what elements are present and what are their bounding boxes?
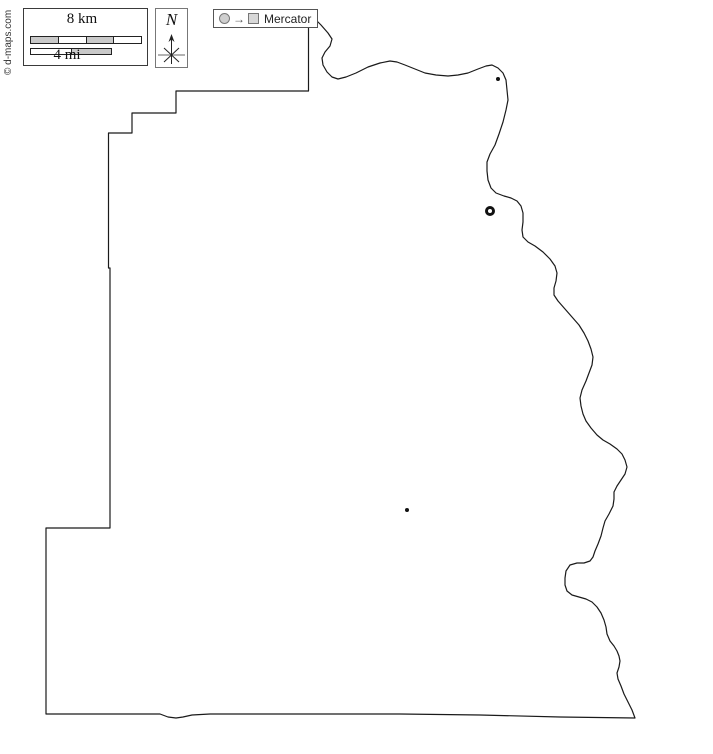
projection-legend: → Mercator: [213, 9, 318, 28]
circle-icon: [219, 13, 230, 24]
scale-segment: [86, 37, 114, 43]
scale-segment: [58, 37, 86, 43]
north-arrow-icon: [156, 33, 187, 67]
scale-segment: [113, 37, 141, 43]
scale-segment: [31, 37, 58, 43]
compass-box: N: [155, 8, 188, 68]
scale-mi-label: 4 mi: [24, 47, 110, 64]
scale-legend: 8 km 4 mi: [23, 8, 148, 66]
square-icon: [248, 13, 259, 24]
town-dot: [405, 508, 409, 512]
arrow-right-icon: →: [233, 13, 245, 25]
town-dot: [496, 77, 500, 81]
map-canvas: © d-maps.com 8 km 4 mi N → Mercator: [0, 0, 713, 754]
scale-km-label: 8 km: [24, 11, 140, 28]
projection-label: Mercator: [262, 12, 311, 26]
scale-bar-km: [30, 36, 142, 44]
city-ring: [487, 208, 494, 215]
map-outline-svg: [0, 0, 713, 754]
north-label: N: [156, 10, 187, 30]
county-outline: [46, 13, 635, 718]
